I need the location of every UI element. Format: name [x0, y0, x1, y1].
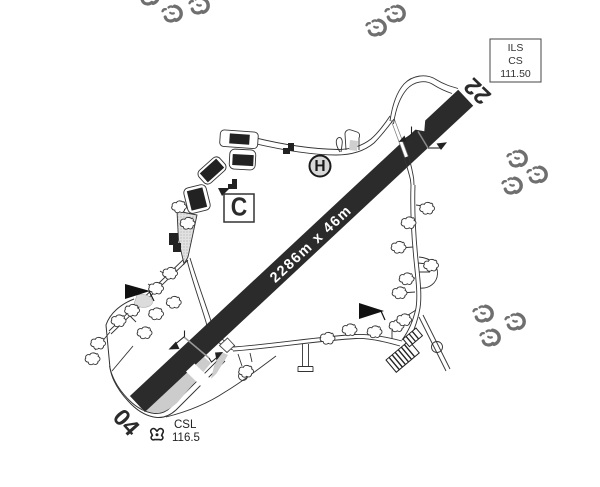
svg-text:CS: CS [508, 55, 523, 67]
svg-text:ILS: ILS [508, 42, 524, 54]
svg-text:CSL: CSL [174, 419, 197, 431]
svg-text:C: C [231, 193, 248, 222]
svg-text:H: H [314, 158, 325, 175]
svg-text:111.50: 111.50 [500, 68, 531, 80]
svg-text:116.5: 116.5 [172, 432, 200, 444]
